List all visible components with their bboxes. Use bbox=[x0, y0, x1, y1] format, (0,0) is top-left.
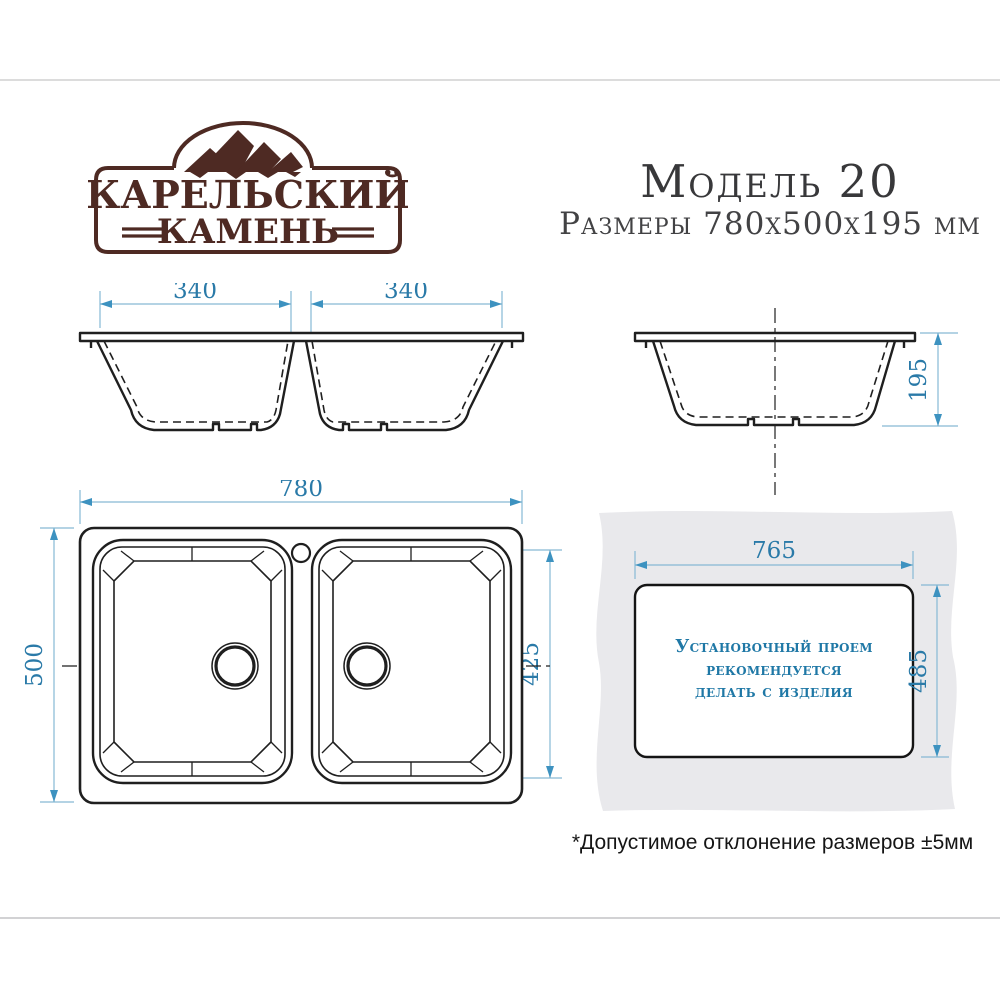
cutout-note-line3: делать с изделия bbox=[695, 682, 853, 702]
brand-logo: КАРЕЛЬСКИЙ КАМЕНЬ bbox=[88, 112, 408, 262]
sink-spec-sheet: КАРЕЛЬСКИЙ КАМЕНЬ Модель 20 Размеры 780х… bbox=[0, 0, 1000, 1000]
bottom-separator-line bbox=[0, 917, 1000, 919]
front-dim-right-bowl: 340 bbox=[384, 283, 428, 304]
front-view-drawing: 340 340 bbox=[55, 283, 535, 458]
front-dim-left-bowl: 340 bbox=[173, 283, 217, 304]
top-dim-overall-width: 780 bbox=[279, 480, 323, 502]
front-extension-lines bbox=[100, 291, 502, 332]
cutout-dim-width: 765 bbox=[752, 538, 796, 564]
side-hidden-line bbox=[660, 341, 888, 417]
top-view-drawing: 780 500 425 bbox=[10, 480, 580, 815]
top-separator-line bbox=[0, 79, 1000, 81]
page-title-model: Модель 20 bbox=[555, 155, 985, 208]
front-hidden-lines bbox=[104, 341, 496, 422]
installation-cutout-drawing: 765 485 Установочный проем рекомендуется… bbox=[575, 495, 995, 825]
brand-name-line2: КАМЕНЬ bbox=[157, 212, 339, 252]
brand-name-line1: КАРЕЛЬСКИЙ bbox=[88, 170, 408, 217]
tolerance-footnote: *Допустимое отклонение размеров ±5мм bbox=[545, 831, 1000, 855]
side-view-drawing: 195 bbox=[600, 290, 1000, 505]
page-subtitle-dimensions: Размеры 780х500х195 мм bbox=[545, 206, 995, 242]
cutout-note-line2: рекомендуется bbox=[706, 660, 842, 680]
top-dim-overall-depth: 500 bbox=[22, 643, 48, 687]
cutout-note-line1: Установочный проем bbox=[675, 637, 873, 657]
cutout-dim-depth: 485 bbox=[906, 649, 932, 693]
side-dim-height: 195 bbox=[906, 358, 932, 402]
front-sink-outline bbox=[80, 333, 523, 430]
